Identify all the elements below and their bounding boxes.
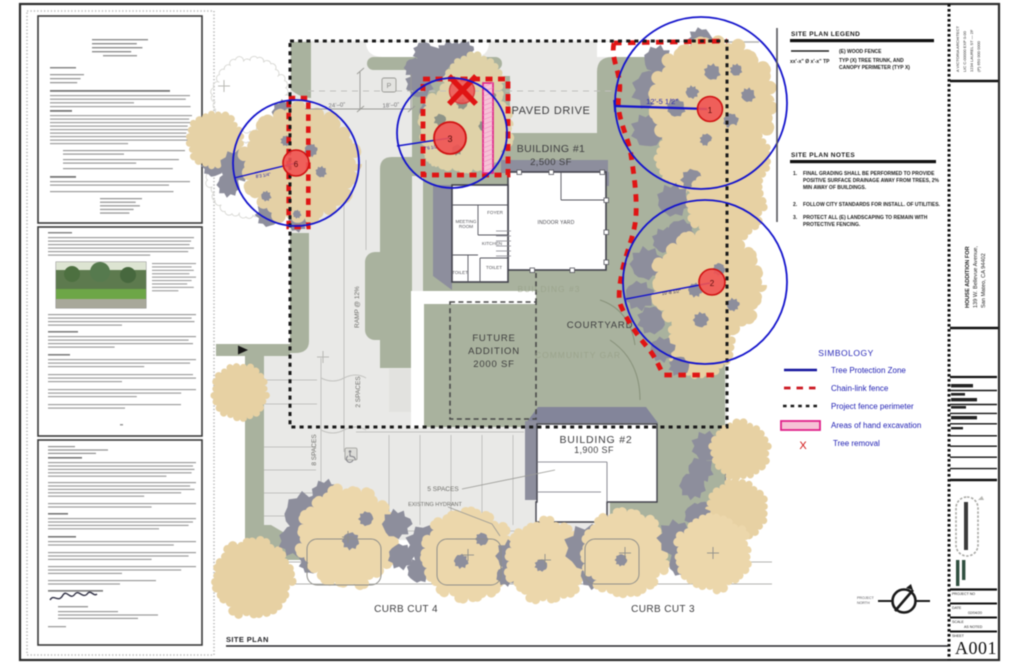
svg-text:SITE PLAN NOTES: SITE PLAN NOTES — [791, 152, 855, 159]
svg-text:P: P — [387, 83, 392, 90]
svg-text:EXISTING HYDRANT: EXISTING HYDRANT — [408, 502, 462, 508]
svg-text:24’–0”: 24’–0” — [328, 102, 345, 109]
svg-text:COURTYARD: COURTYARD — [567, 320, 634, 331]
svg-text:SCALE: SCALE — [952, 620, 964, 624]
svg-text:18’–0”: 18’–0” — [382, 102, 399, 109]
svg-text:PROTECTIVE FENCING.: PROTECTIVE FENCING. — [803, 222, 861, 228]
svg-text:FOYER: FOYER — [487, 210, 504, 215]
svg-text:Chain-link fence: Chain-link fence — [831, 384, 889, 393]
svg-text:1,900 SF: 1,900 SF — [574, 445, 614, 455]
svg-text:1: 1 — [708, 106, 713, 115]
svg-text:BUILDING #3: BUILDING #3 — [518, 284, 581, 294]
svg-text:ROOM: ROOM — [459, 224, 473, 229]
svg-text:2: 2 — [710, 279, 715, 288]
svg-text:A001: A001 — [955, 638, 997, 658]
svg-text:TOILET: TOILET — [486, 265, 502, 270]
svg-text:2 SPACES: 2 SPACES — [355, 376, 362, 408]
svg-text:Project fence perimeter: Project fence perimeter — [831, 402, 914, 411]
svg-text:PROJECT NO: PROJECT NO — [952, 592, 975, 596]
svg-text:LIC C-00000 EXP 0-00: LIC C-00000 EXP 0-00 — [962, 30, 967, 72]
svg-text:2000 SF: 2000 SF — [473, 359, 515, 370]
svg-text:San Mateo, CA 94402: San Mateo, CA 94402 — [981, 253, 987, 308]
svg-text:1234 LAUREL ST — 2F: 1234 LAUREL ST — 2F — [969, 29, 974, 72]
svg-text:CANOPY PERIMETER (TYP X): CANOPY PERIMETER (TYP X) — [839, 65, 910, 71]
svg-text:ADDITION: ADDITION — [468, 346, 520, 357]
svg-text:2,500 SF: 2,500 SF — [530, 157, 572, 168]
svg-text:TOILET: TOILET — [452, 270, 468, 275]
svg-text:SIMBOLOGY: SIMBOLOGY — [818, 348, 874, 358]
svg-text:AS NOTED: AS NOTED — [964, 625, 983, 629]
svg-text:PROTECT ALL (E) LANDSCAPING TO: PROTECT ALL (E) LANDSCAPING TO REMAIN WI… — [803, 215, 928, 221]
svg-text:FUTURE: FUTURE — [472, 333, 515, 344]
svg-text:3.: 3. — [793, 215, 798, 221]
svg-text:INDOOR YARD: INDOOR YARD — [537, 220, 574, 226]
svg-text:2.: 2. — [793, 202, 798, 208]
svg-text:FINAL GRADING SHALL BE PERFORM: FINAL GRADING SHALL BE PERFORMED TO PROV… — [803, 171, 935, 177]
svg-text:Tree Protection Zone: Tree Protection Zone — [831, 366, 906, 375]
svg-text:KITCHEN: KITCHEN — [482, 241, 502, 246]
svg-text:xx’-x” Ø x’-x” TP: xx’-x” Ø x’-x” TP — [790, 59, 830, 65]
svg-text:X: X — [799, 440, 807, 452]
svg-text:(E) WOOD FENCE: (E) WOOD FENCE — [839, 49, 882, 55]
svg-text:PROJECT: PROJECT — [857, 596, 875, 600]
svg-text:139 W. Bellevue Avenue,: 139 W. Bellevue Avenue, — [973, 245, 979, 308]
svg-text:8 SPACES: 8 SPACES — [311, 434, 318, 466]
svg-text:CURB CUT 4: CURB CUT 4 — [374, 604, 438, 615]
svg-text:PAVED DRIVE: PAVED DRIVE — [512, 105, 591, 117]
svg-text:FOLLOW CITY STANDARDS FOR INST: FOLLOW CITY STANDARDS FOR INSTALL. OF UT… — [803, 202, 941, 208]
svg-text:TYP (X) TREE TRUNK, AND: TYP (X) TREE TRUNK, AND — [839, 58, 904, 64]
svg-text:SITE PLAN LEGEND: SITE PLAN LEGEND — [791, 31, 860, 38]
svg-text:02/04/20: 02/04/20 — [968, 611, 982, 615]
svg-text:6: 6 — [294, 160, 299, 169]
svg-text:A VICTORIA ARCHITECT: A VICTORIA ARCHITECT — [955, 26, 960, 72]
svg-text:SITE PLAN: SITE PLAN — [226, 635, 269, 644]
svg-text:RAMP @ 12%: RAMP @ 12% — [354, 286, 361, 328]
svg-text:(P) 650 000 0000: (P) 650 000 0000 — [976, 40, 981, 72]
svg-text:Areas of hand excavation: Areas of hand excavation — [831, 421, 921, 430]
svg-text:DATE: DATE — [952, 606, 962, 610]
svg-text:POSITIVE SURFACE DRAINAGE AWAY: POSITIVE SURFACE DRAINAGE AWAY FROM TREE… — [803, 178, 940, 184]
svg-text:5 SPACES: 5 SPACES — [427, 486, 459, 493]
svg-text:COMMUNITY GAR: COMMUNITY GAR — [535, 350, 621, 360]
svg-text:HOUSE ADDITION FOR: HOUSE ADDITION FOR — [965, 246, 971, 308]
svg-text:3: 3 — [447, 134, 452, 144]
svg-text:1.: 1. — [793, 171, 798, 177]
svg-text:Tree removal: Tree removal — [833, 439, 880, 448]
svg-text:CURB CUT 3: CURB CUT 3 — [631, 604, 695, 615]
svg-text:NORTH: NORTH — [857, 601, 870, 605]
svg-text:MIN AWAY OF BUILDINGS.: MIN AWAY OF BUILDINGS. — [803, 185, 867, 191]
svg-text:BUILDING #1: BUILDING #1 — [517, 143, 586, 155]
svg-text:12’-5 1/2”: 12’-5 1/2” — [646, 97, 678, 106]
